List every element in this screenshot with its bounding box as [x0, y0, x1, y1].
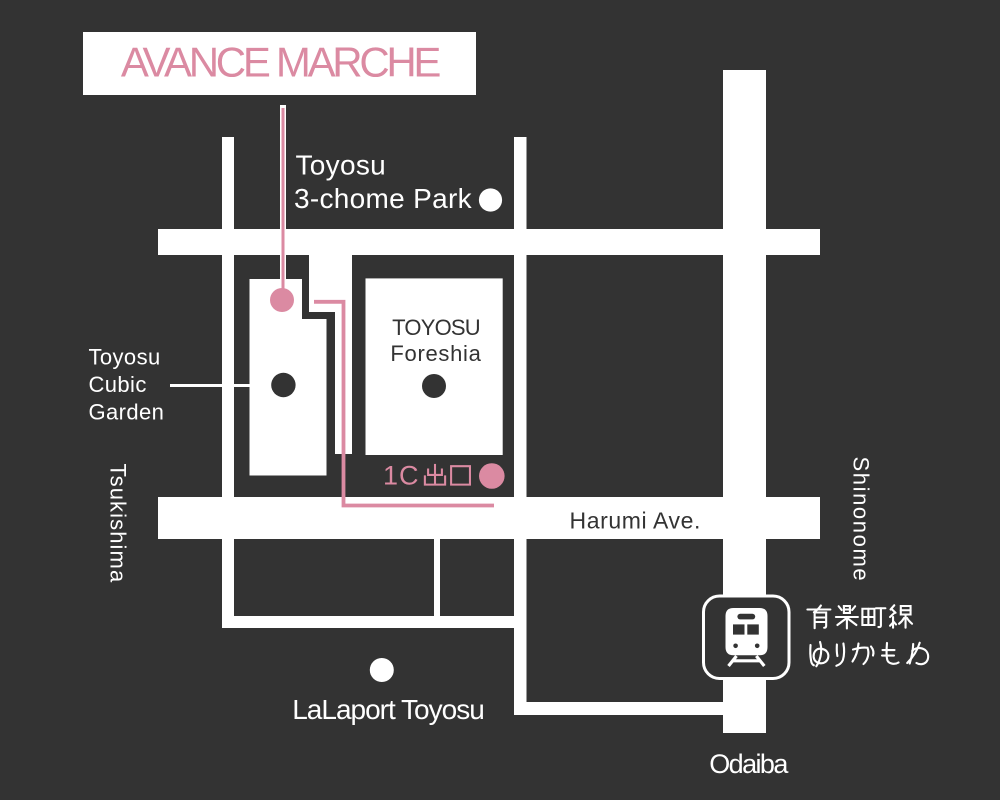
svg-text:Tsukishima: Tsukishima	[106, 464, 131, 584]
svg-text:Foreshia: Foreshia	[390, 341, 481, 366]
svg-text:Toyosu: Toyosu	[89, 345, 161, 370]
svg-text:Cubic: Cubic	[89, 372, 147, 397]
svg-text:1C: 1C	[383, 461, 420, 491]
svg-text:AVANCE MARCHE: AVANCE MARCHE	[121, 39, 441, 86]
svg-text:LaLaport Toyosu: LaLaport Toyosu	[292, 694, 484, 725]
svg-text:Harumi Ave.: Harumi Ave.	[570, 508, 701, 534]
svg-text:TOYOSU: TOYOSU	[392, 315, 480, 340]
svg-text:Odaiba: Odaiba	[709, 749, 789, 779]
svg-text:Garden: Garden	[89, 400, 165, 425]
svg-text:3-chome Park: 3-chome Park	[294, 183, 473, 214]
svg-text:Toyosu: Toyosu	[296, 150, 387, 181]
svg-text:Shinonome: Shinonome	[849, 457, 874, 583]
